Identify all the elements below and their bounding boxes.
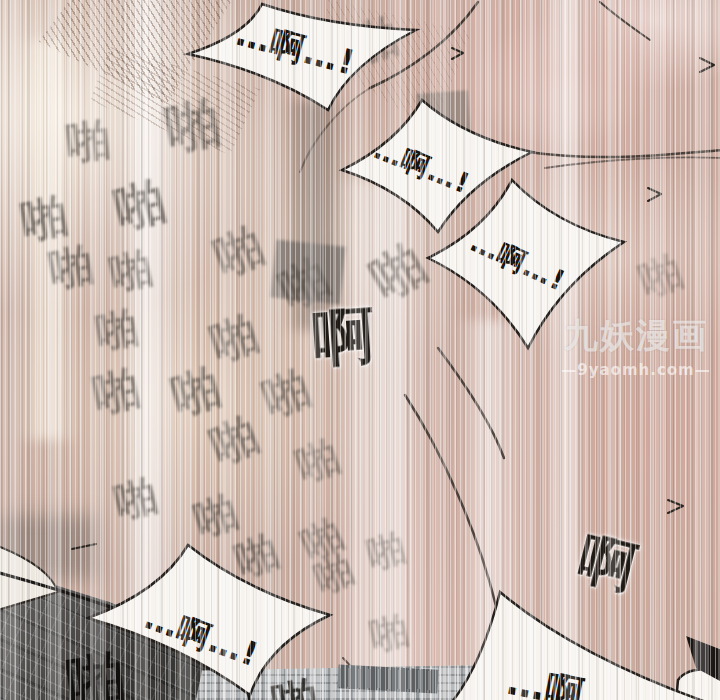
speech-bubble-shapes [0, 0, 720, 700]
accent-mark [72, 544, 96, 549]
accent-mark [452, 48, 463, 59]
accent-mark [668, 500, 683, 513]
cloth-wedge [0, 546, 58, 610]
accent-mark [700, 58, 714, 72]
comic-page[interactable]: 啪啪啪啪啪啪啪啪啪啪啪啪啪啪啪啪啪啪啪啪啪啪啪啪啪啊啊 啪啪 …啊…! …啊…!… [0, 0, 720, 700]
accent-mark [648, 188, 661, 201]
